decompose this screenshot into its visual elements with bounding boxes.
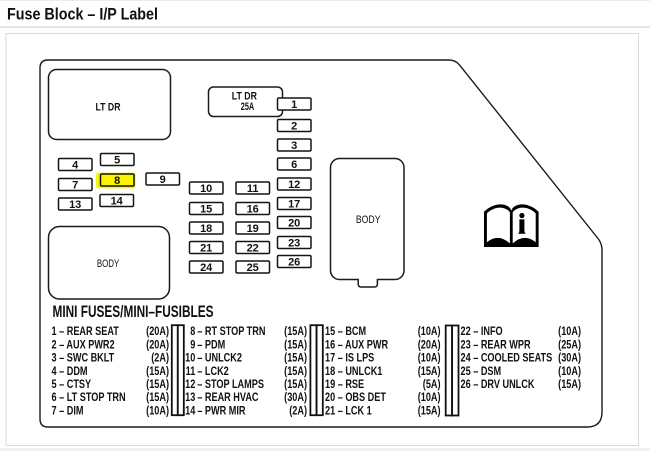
svg-text:2: 2 bbox=[291, 121, 297, 133]
svg-text:(15A): (15A) bbox=[284, 378, 307, 392]
svg-text:(15A): (15A) bbox=[418, 404, 441, 418]
svg-text:17: 17 bbox=[288, 199, 300, 211]
svg-text:(15A): (15A) bbox=[146, 365, 169, 379]
svg-text:5 – CTSY: 5 – CTSY bbox=[52, 378, 92, 392]
svg-text:3: 3 bbox=[291, 140, 297, 152]
svg-text:(20A): (20A) bbox=[146, 325, 169, 339]
svg-text:2 – AUX PWR2: 2 – AUX PWR2 bbox=[52, 338, 115, 352]
svg-text:– RT STOP TRN: – RT STOP TRN bbox=[197, 325, 265, 339]
svg-text:21: 21 bbox=[200, 243, 212, 255]
svg-text:5: 5 bbox=[114, 155, 120, 167]
svg-text:6: 6 bbox=[291, 159, 297, 171]
svg-text:6 – LT STOP TRN: 6 – LT STOP TRN bbox=[52, 391, 126, 405]
svg-text:– PWR MIR: – PWR MIR bbox=[197, 404, 245, 418]
svg-text:8: 8 bbox=[114, 175, 120, 187]
svg-text:14: 14 bbox=[111, 196, 124, 208]
svg-text:23 – REAR WPR: 23 – REAR WPR bbox=[461, 338, 531, 352]
svg-text:22 – INFO: 22 – INFO bbox=[461, 325, 503, 339]
svg-text:7 – DIM: 7 – DIM bbox=[52, 404, 84, 418]
svg-text:– UNLCK2: – UNLCK2 bbox=[197, 351, 242, 365]
svg-text:(15A): (15A) bbox=[146, 378, 169, 392]
svg-text:15 – BCM: 15 – BCM bbox=[325, 325, 366, 339]
svg-text:4: 4 bbox=[72, 160, 79, 172]
svg-text:(15A): (15A) bbox=[418, 365, 441, 379]
svg-text:– REAR HVAC: – REAR HVAC bbox=[197, 391, 258, 405]
svg-text:8: 8 bbox=[190, 325, 195, 339]
svg-text:(15A): (15A) bbox=[284, 351, 307, 365]
svg-text:18: 18 bbox=[200, 223, 212, 235]
svg-text:MINI FUSES/MINI–FUSIBLES: MINI FUSES/MINI–FUSIBLES bbox=[53, 303, 214, 321]
svg-text:(20A): (20A) bbox=[418, 338, 441, 352]
svg-text:Fuse Block – I/P Label: Fuse Block – I/P Label bbox=[7, 5, 158, 24]
svg-text:24: 24 bbox=[200, 262, 213, 274]
svg-text:(10A): (10A) bbox=[558, 325, 581, 339]
svg-text:12: 12 bbox=[288, 179, 300, 191]
svg-text:25A: 25A bbox=[241, 101, 255, 113]
svg-text:17 – IS LPS: 17 – IS LPS bbox=[325, 351, 374, 365]
svg-text:19: 19 bbox=[247, 223, 259, 235]
svg-text:12: 12 bbox=[185, 378, 195, 392]
svg-text:(15A): (15A) bbox=[558, 378, 581, 392]
svg-text:10: 10 bbox=[185, 351, 195, 365]
svg-text:(10A): (10A) bbox=[558, 365, 581, 379]
svg-text:21 – LCK 1: 21 – LCK 1 bbox=[325, 404, 372, 418]
svg-text:(15A): (15A) bbox=[284, 365, 307, 379]
svg-text:10: 10 bbox=[200, 183, 212, 195]
svg-text:LT DR: LT DR bbox=[96, 102, 121, 114]
svg-text:(30A): (30A) bbox=[284, 391, 307, 405]
svg-text:20 – OBS DET: 20 – OBS DET bbox=[325, 391, 386, 405]
svg-text:25: 25 bbox=[247, 262, 259, 274]
svg-text:(10A): (10A) bbox=[418, 351, 441, 365]
svg-text:(2A): (2A) bbox=[151, 351, 169, 365]
svg-text:26 – DRV UNLCK: 26 – DRV UNLCK bbox=[461, 378, 535, 392]
svg-text:13: 13 bbox=[185, 391, 195, 405]
svg-text:9: 9 bbox=[190, 338, 195, 352]
svg-text:(15A): (15A) bbox=[284, 325, 307, 339]
svg-text:14: 14 bbox=[185, 404, 195, 418]
svg-text:7: 7 bbox=[72, 180, 78, 192]
svg-text:– STOP LAMPS: – STOP LAMPS bbox=[197, 378, 264, 392]
svg-text:11: 11 bbox=[186, 365, 196, 379]
svg-text:23: 23 bbox=[288, 238, 300, 250]
svg-text:19 – RSE: 19 – RSE bbox=[325, 378, 364, 392]
svg-text:9: 9 bbox=[160, 174, 166, 186]
svg-text:26: 26 bbox=[288, 257, 300, 269]
svg-text:1 – REAR SEAT: 1 – REAR SEAT bbox=[52, 325, 120, 339]
svg-text:(20A): (20A) bbox=[146, 338, 169, 352]
svg-text:(30A): (30A) bbox=[558, 351, 581, 365]
svg-text:(15A): (15A) bbox=[284, 338, 307, 352]
svg-text:BODY: BODY bbox=[356, 214, 381, 226]
svg-text:11: 11 bbox=[247, 183, 259, 195]
svg-text:– PDM: – PDM bbox=[197, 338, 225, 352]
svg-text:20: 20 bbox=[288, 218, 300, 230]
svg-text:25 – DSM: 25 – DSM bbox=[461, 365, 502, 379]
svg-text:(15A): (15A) bbox=[146, 391, 169, 405]
svg-text:(10A): (10A) bbox=[146, 404, 169, 418]
svg-text:4 – DDM: 4 – DDM bbox=[52, 365, 88, 379]
svg-text:15: 15 bbox=[200, 204, 212, 216]
svg-text:24 – COOLED SEATS: 24 – COOLED SEATS bbox=[461, 351, 553, 365]
svg-text:– LCK2: – LCK2 bbox=[197, 365, 228, 379]
svg-text:(10A): (10A) bbox=[418, 391, 441, 405]
svg-text:BODY: BODY bbox=[97, 258, 120, 270]
svg-text:13: 13 bbox=[69, 199, 81, 211]
svg-text:(10A): (10A) bbox=[418, 325, 441, 339]
svg-text:16 – AUX PWR: 16 – AUX PWR bbox=[325, 338, 388, 352]
svg-text:(2A): (2A) bbox=[289, 404, 307, 418]
svg-text:18 – UNLCK1: 18 – UNLCK1 bbox=[325, 365, 382, 379]
svg-text:(25A): (25A) bbox=[558, 338, 581, 352]
svg-text:16: 16 bbox=[247, 204, 259, 216]
svg-text:22: 22 bbox=[247, 243, 259, 255]
svg-text:3 – SWC BKLT: 3 – SWC BKLT bbox=[52, 351, 115, 365]
svg-text:1: 1 bbox=[291, 99, 297, 111]
svg-text:(5A): (5A) bbox=[423, 378, 441, 392]
